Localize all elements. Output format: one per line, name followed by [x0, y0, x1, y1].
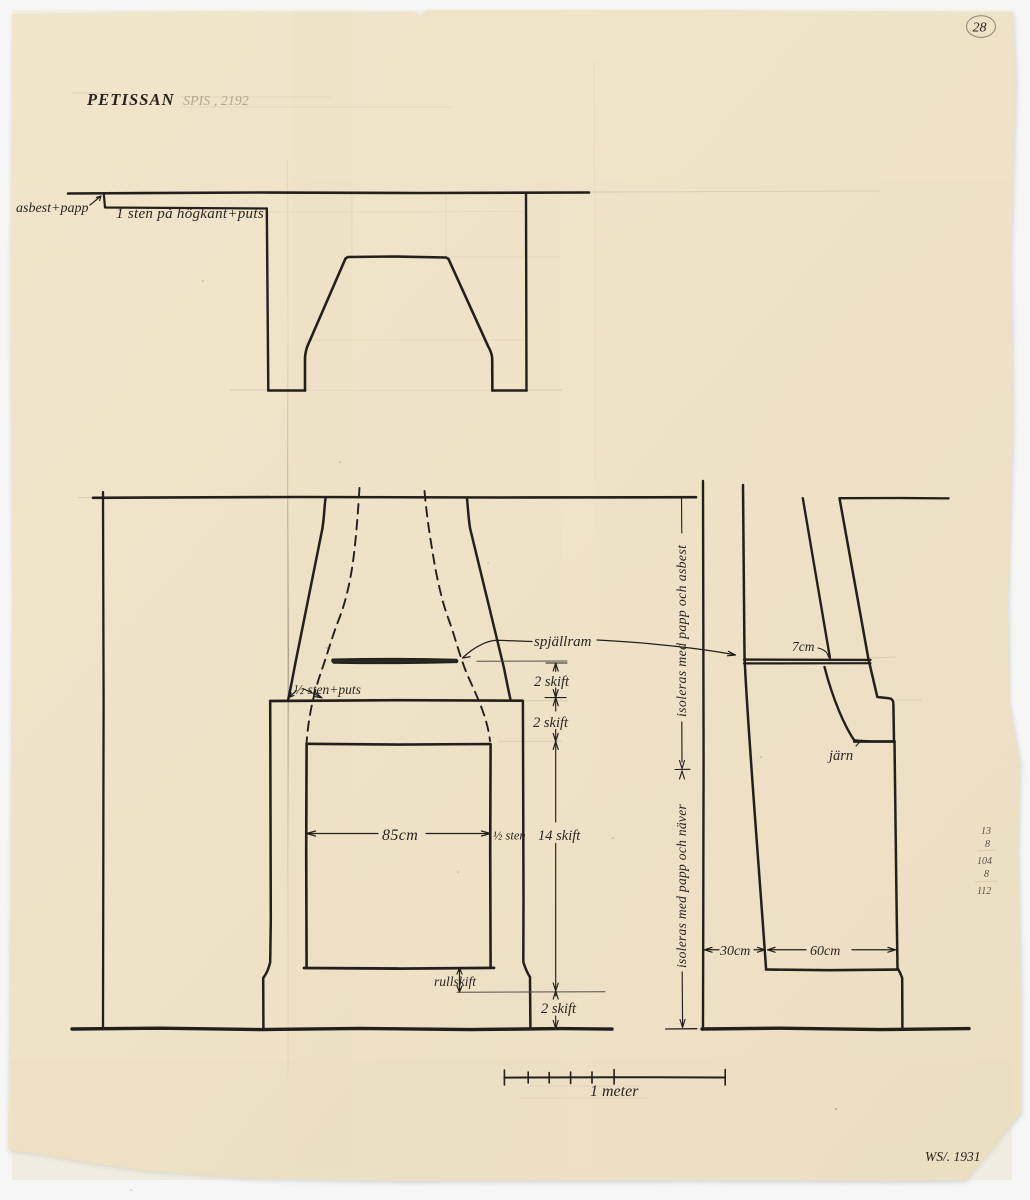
svg-text:2 skift: 2 skift — [533, 715, 569, 731]
svg-text:85cm: 85cm — [382, 827, 418, 844]
svg-text:13: 13 — [981, 826, 991, 837]
svg-text:isoleras med papp och näver: isoleras med papp och näver — [674, 803, 689, 968]
svg-text:112: 112 — [977, 886, 991, 897]
svg-text:SPIS , 2192: SPIS , 2192 — [183, 94, 249, 109]
svg-text:spjällram: spjällram — [534, 634, 592, 650]
svg-text:60cm: 60cm — [810, 944, 840, 959]
svg-text:rullskift: rullskift — [434, 974, 477, 989]
svg-text:1 sten på högkant+puts: 1 sten på högkant+puts — [116, 206, 264, 222]
svg-text:2 skift: 2 skift — [541, 1001, 577, 1017]
svg-text:2 skift: 2 skift — [534, 674, 570, 690]
svg-text:30cm: 30cm — [719, 944, 750, 959]
svg-text:asbest+papp: asbest+papp — [16, 201, 88, 216]
svg-text:WS/. 1931: WS/. 1931 — [925, 1149, 981, 1164]
svg-text:PETISSAN: PETISSAN — [86, 90, 175, 109]
svg-text:1 meter: 1 meter — [590, 1083, 639, 1100]
svg-text:28: 28 — [973, 21, 987, 36]
svg-text:14 skift: 14 skift — [538, 828, 581, 844]
svg-text:8: 8 — [985, 839, 990, 850]
svg-text:104: 104 — [977, 856, 992, 867]
svg-text:7cm: 7cm — [792, 639, 815, 654]
svg-text:järn: järn — [827, 748, 853, 764]
svg-text:½ sten: ½ sten — [493, 829, 526, 843]
svg-text:8: 8 — [984, 869, 989, 880]
svg-text:isoleras med papp och asbest: isoleras med papp och asbest — [674, 544, 689, 717]
